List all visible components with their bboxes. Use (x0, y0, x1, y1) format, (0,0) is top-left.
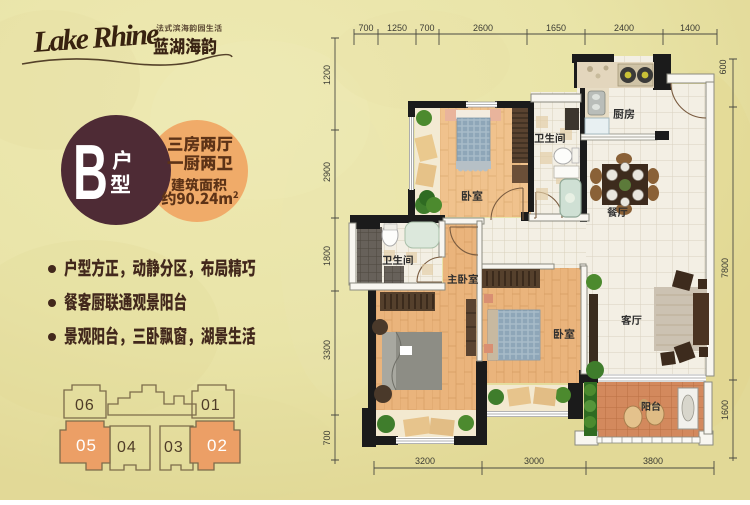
svg-text:1800: 1800 (322, 246, 332, 266)
svg-text:02: 02 (207, 436, 228, 455)
svg-text:03: 03 (164, 439, 184, 456)
svg-text:1400: 1400 (680, 23, 700, 33)
svg-text:1250: 1250 (387, 23, 407, 33)
svg-text:700: 700 (419, 23, 434, 33)
svg-text:B: B (73, 128, 108, 216)
svg-text:3000: 3000 (524, 456, 544, 466)
svg-text:1200: 1200 (322, 65, 332, 85)
svg-text:05: 05 (76, 436, 97, 455)
svg-text:2900: 2900 (322, 162, 332, 182)
svg-text:1650: 1650 (546, 23, 566, 33)
svg-text:1600: 1600 (720, 400, 730, 420)
svg-text:01: 01 (201, 397, 221, 414)
svg-text:04: 04 (117, 439, 137, 456)
svg-text:600: 600 (718, 59, 728, 74)
svg-text:2600: 2600 (473, 23, 493, 33)
svg-text:700: 700 (322, 430, 332, 445)
svg-text:700: 700 (358, 23, 373, 33)
svg-text:3800: 3800 (643, 456, 663, 466)
svg-text:3200: 3200 (415, 456, 435, 466)
svg-text:7800: 7800 (720, 258, 730, 278)
svg-text:3300: 3300 (322, 340, 332, 360)
svg-text:2400: 2400 (614, 23, 634, 33)
svg-text:06: 06 (75, 397, 95, 414)
